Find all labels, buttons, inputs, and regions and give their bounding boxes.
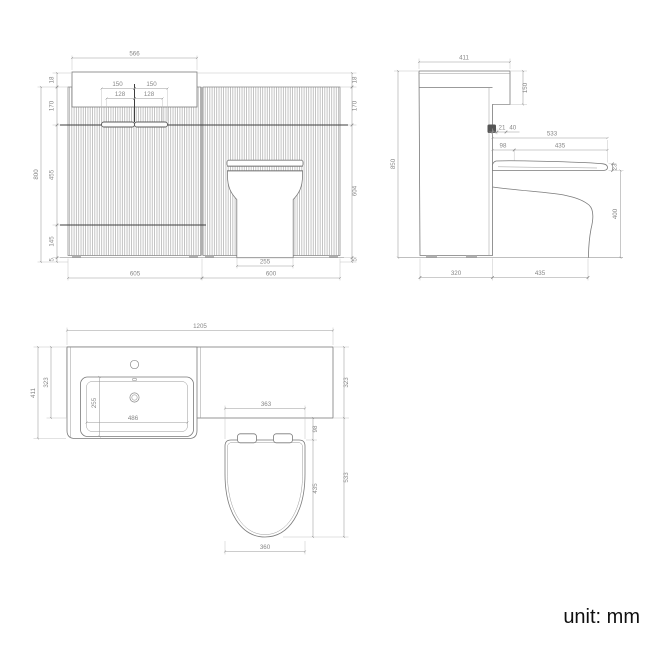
- dim-front-handle-left: 150: [112, 81, 123, 88]
- dim-front-plinth-right: 5: [352, 258, 359, 262]
- seat-hinge-right: [274, 434, 293, 443]
- toilet-seat-plan: [225, 440, 305, 537]
- toilet-pan-side: [493, 187, 593, 258]
- dim-plan-seat-setback: 98: [312, 425, 319, 432]
- dim-front-plinth-left: 5: [49, 258, 56, 262]
- toilet-pan-front: [228, 171, 303, 258]
- dim-plan-worktop-depth-right: 323: [343, 377, 350, 388]
- dim-front-top-thickness-left: 18: [49, 76, 56, 83]
- dim-side-depth: 411: [459, 55, 469, 62]
- front-elevation-view: 566 150 150 128 128 18 170 800 455 145 5…: [33, 51, 359, 281]
- tap-hole: [130, 360, 138, 368]
- dim-side-pan-projection: 435: [535, 270, 546, 277]
- dim-front-upper-right: 170: [352, 100, 359, 111]
- plan-view: 1205 411 323 323 255 486 363 98 435 533 …: [30, 323, 350, 555]
- dim-plan-seat-depth: 435: [312, 483, 319, 494]
- drawer-handle-right: [135, 122, 168, 127]
- dim-front-wc-height: 604: [352, 185, 359, 196]
- dim-front-overall-height: 800: [33, 169, 40, 180]
- toilet-seat-side: [493, 161, 608, 171]
- dim-plan-seat-width: 360: [260, 544, 271, 551]
- dim-side-overall-height: 850: [390, 158, 397, 169]
- drawer-handle-left: [102, 122, 135, 127]
- drain-outer: [130, 393, 139, 402]
- dim-front-handle-right: 150: [146, 81, 157, 88]
- technical-drawing: 566 150 150 128 128 18 170 800 455 145 5…: [0, 0, 650, 650]
- dim-front-base-height: 145: [49, 236, 56, 247]
- dim-plan-overall-depth: 411: [30, 388, 37, 398]
- dim-front-pan-width: 255: [260, 259, 271, 266]
- seat-hinge-left: [238, 434, 257, 443]
- dim-side-handle-depth: 40: [509, 125, 516, 132]
- dim-plan-worktop-depth-left: 323: [43, 377, 50, 388]
- dim-side-pan-height: 400: [612, 208, 619, 219]
- dim-front-handle-inner-left: 128: [115, 91, 126, 98]
- dim-side-seat-setback: 98: [500, 143, 507, 150]
- dim-side-cabinet-depth: 320: [451, 270, 462, 277]
- dim-side-seat-thickness: 23: [612, 163, 619, 170]
- dim-side-worktop-return: 150: [522, 82, 529, 93]
- dim-plan-overall-width: 1205: [193, 323, 207, 330]
- dim-side-wc-total-depth: 533: [547, 131, 558, 138]
- dim-side-seat-depth: 435: [555, 143, 566, 150]
- toilet-seat-lid-front: [227, 160, 303, 166]
- dim-front-wc-width: 600: [266, 271, 277, 278]
- dim-front-handle-inner-right: 128: [144, 91, 155, 98]
- unit-label: unit: mm: [545, 606, 640, 629]
- dim-front-top-thickness-right: 18: [352, 76, 359, 83]
- side-elevation-view: 411 150 850 21 40 533 98 435 23 400 320 …: [390, 55, 624, 281]
- dim-front-vanity-width: 605: [130, 271, 141, 278]
- dim-side-handle-offset: 21: [499, 125, 506, 132]
- dim-plan-basin-width: 486: [128, 415, 139, 422]
- dim-plan-wc-total-depth: 533: [343, 472, 350, 483]
- dim-front-top-width: 566: [129, 51, 140, 58]
- dim-plan-wc-recess-width: 363: [261, 401, 272, 408]
- dim-plan-basin-depth: 255: [91, 397, 98, 408]
- dim-front-upper-left: 170: [49, 100, 56, 111]
- drawing-page: 566 150 150 128 128 18 170 800 455 145 5…: [0, 0, 650, 650]
- dim-front-drawer-height: 455: [49, 169, 56, 180]
